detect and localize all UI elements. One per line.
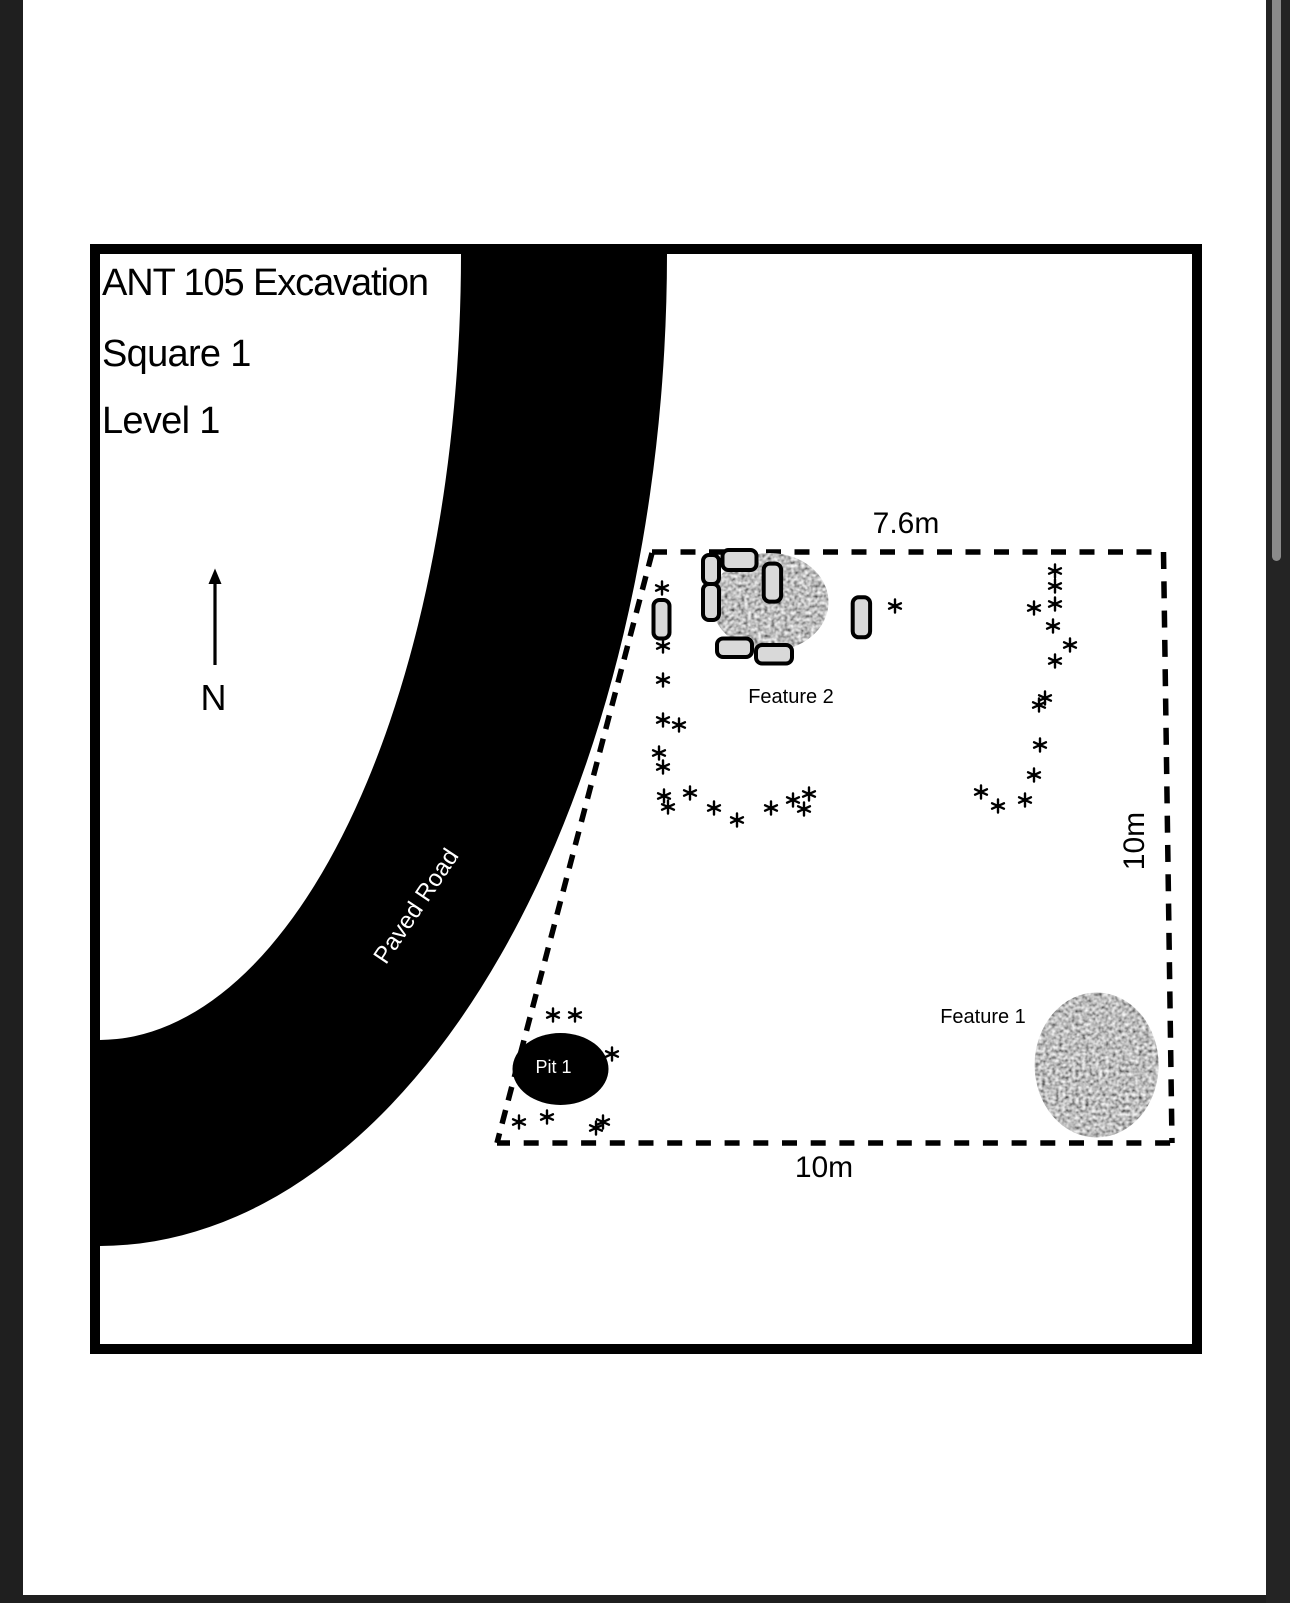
svg-text:Pit 1: Pit 1 [535, 1057, 571, 1077]
svg-text:Square 1: Square 1 [102, 333, 251, 375]
svg-text:Level 1: Level 1 [102, 400, 220, 442]
svg-text:10m: 10m [795, 1151, 853, 1184]
svg-text:7.6m: 7.6m [873, 507, 940, 540]
svg-text:Feature 1: Feature 1 [940, 1006, 1026, 1028]
svg-text:10m: 10m [1118, 812, 1151, 870]
svg-text:Feature 2: Feature 2 [748, 686, 834, 708]
svg-text:ANT 105 Excavation: ANT 105 Excavation [102, 262, 428, 304]
svg-text:N: N [201, 677, 227, 718]
